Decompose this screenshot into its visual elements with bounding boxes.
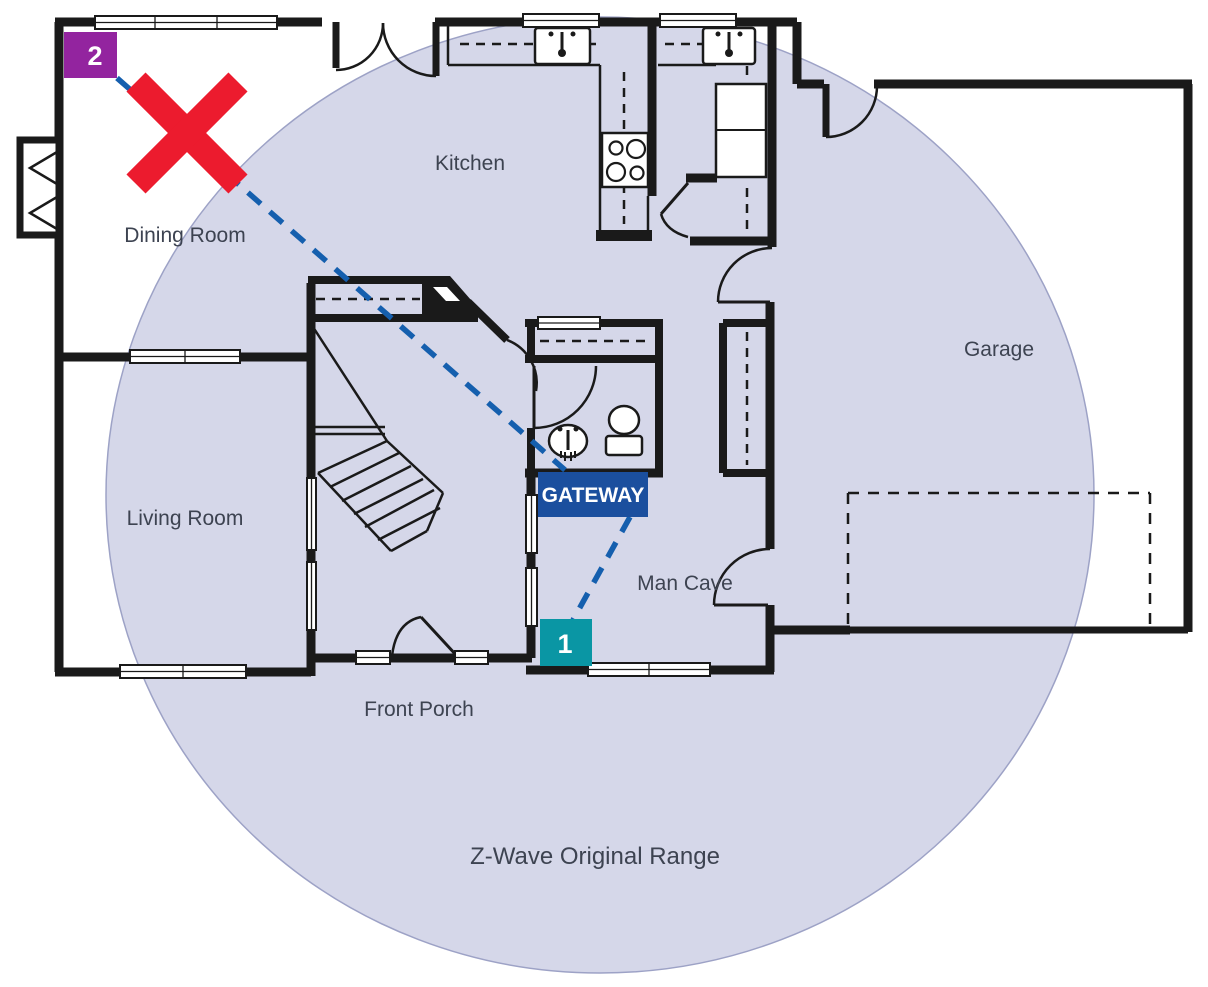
floorplan-svg: 2 1 GATEWAY Kitchen Dining Room Living R… [0,0,1208,987]
range-area-label: Z-Wave Original Range [470,843,720,870]
room-label-dining: Dining Room [124,224,245,247]
gateway-badge: GATEWAY [538,472,648,517]
node-1-badge: 1 [540,619,592,666]
room-label-front-porch: Front Porch [364,698,474,721]
counter-end-cap [596,230,652,241]
room-label-garage: Garage [964,338,1034,361]
stove [602,133,648,187]
room-label-kitchen: Kitchen [435,152,505,175]
node-2-badge: 2 [64,32,117,78]
floorplan-diagram: 2 1 GATEWAY Kitchen Dining Room Living R… [0,0,1208,987]
node-2-label: 2 [87,41,102,71]
refrigerator [716,84,766,177]
gateway-label: GATEWAY [542,484,645,507]
room-label-man-cave: Man Cave [637,572,733,595]
out-of-range-x-icon [136,82,238,184]
room-label-living: Living Room [127,507,244,530]
kitchen-sink-right [703,28,755,64]
node-1-label: 1 [557,629,572,659]
kitchen-sink-left [535,28,590,64]
double-door-arc-left [336,23,383,70]
